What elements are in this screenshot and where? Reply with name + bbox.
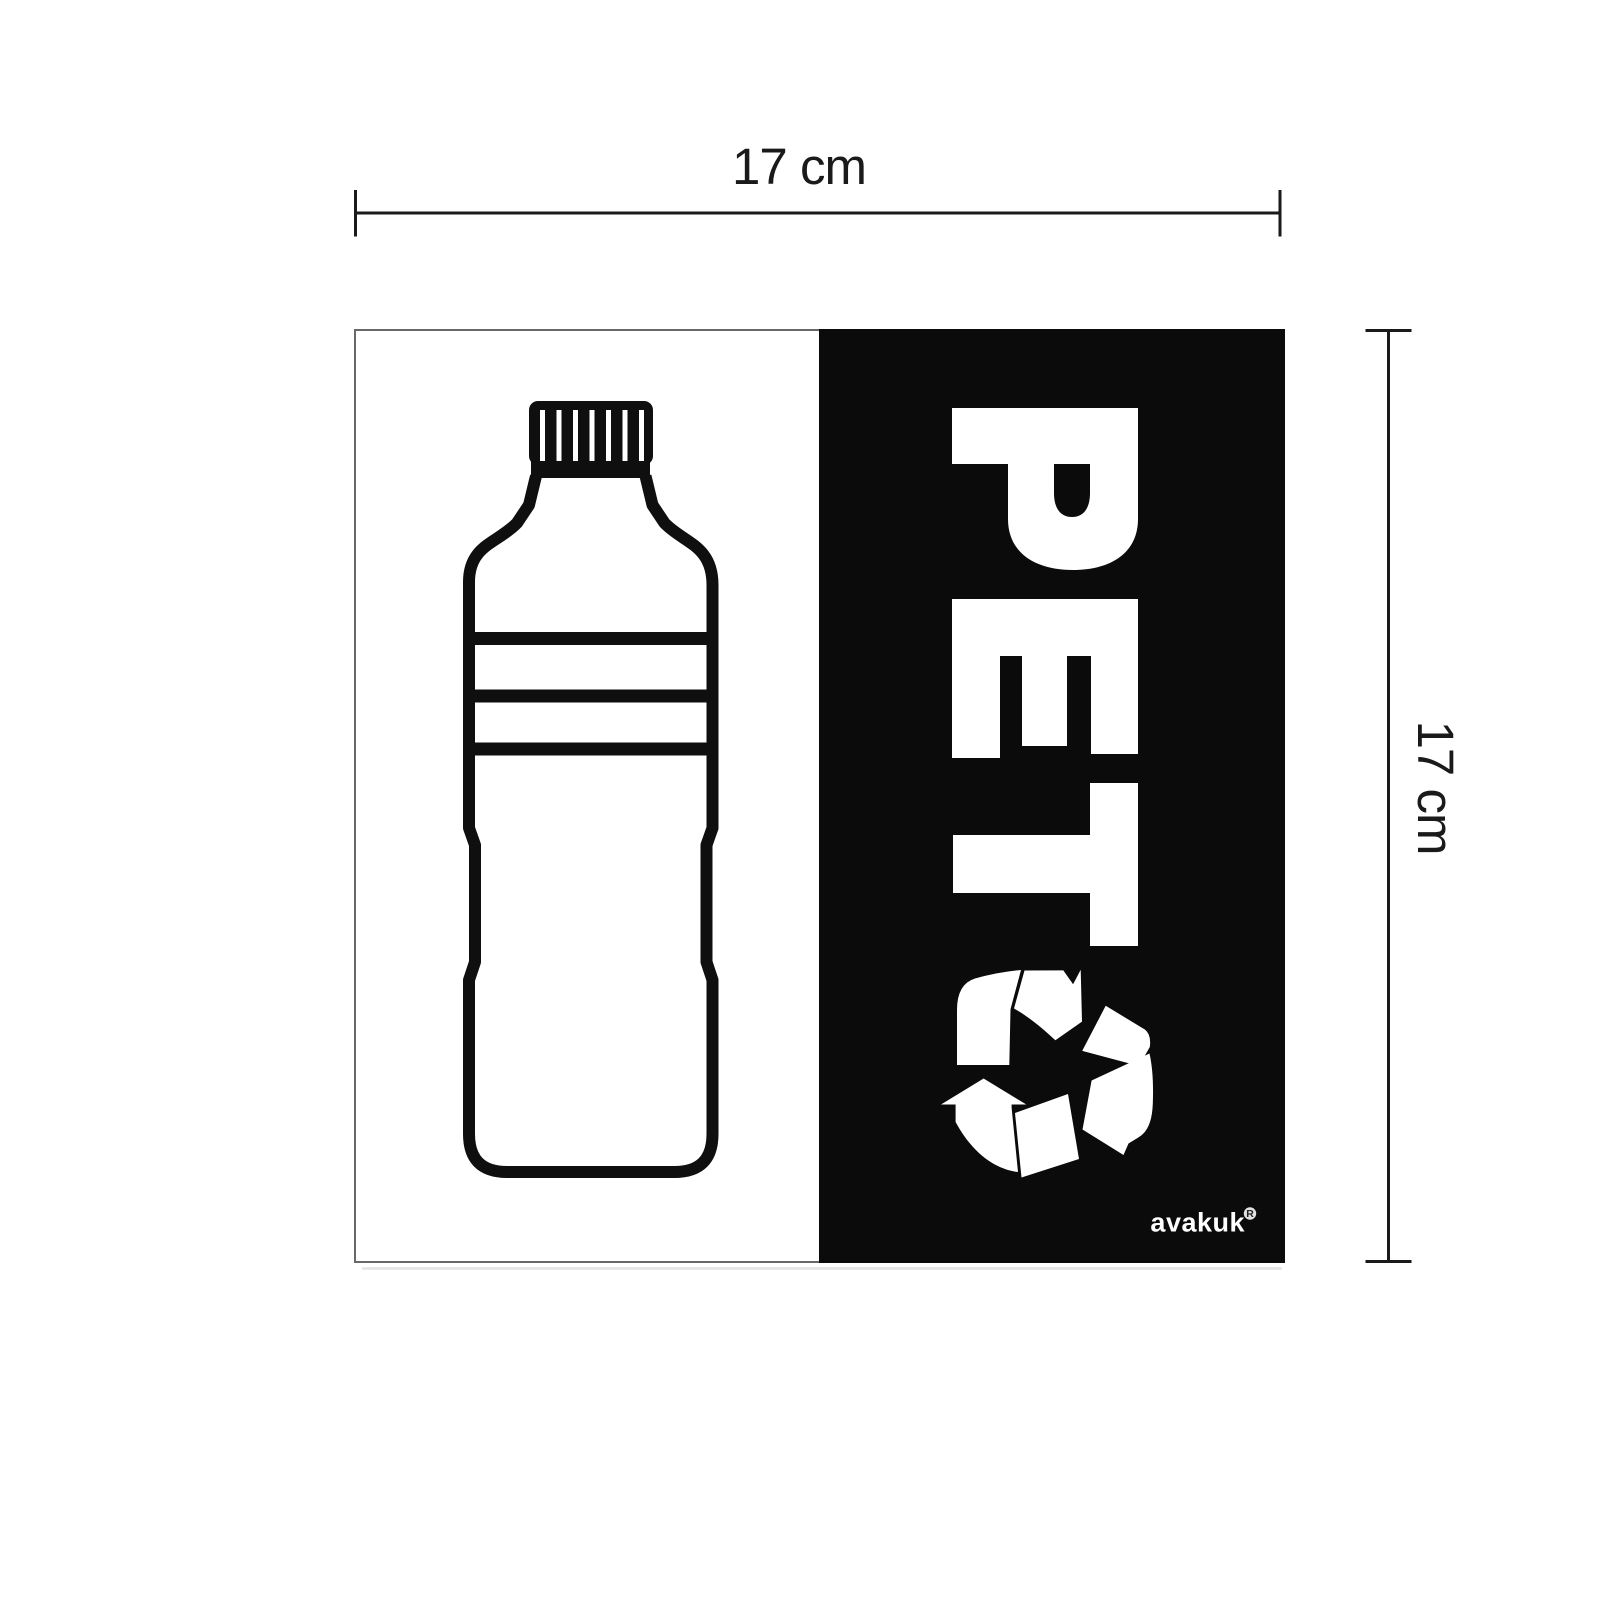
svg-text:R: R: [1246, 1208, 1254, 1220]
svg-text:17 cm: 17 cm: [732, 138, 866, 195]
svg-text:avakuk: avakuk: [1150, 1208, 1245, 1238]
svg-text:17 cm: 17 cm: [1407, 721, 1464, 855]
